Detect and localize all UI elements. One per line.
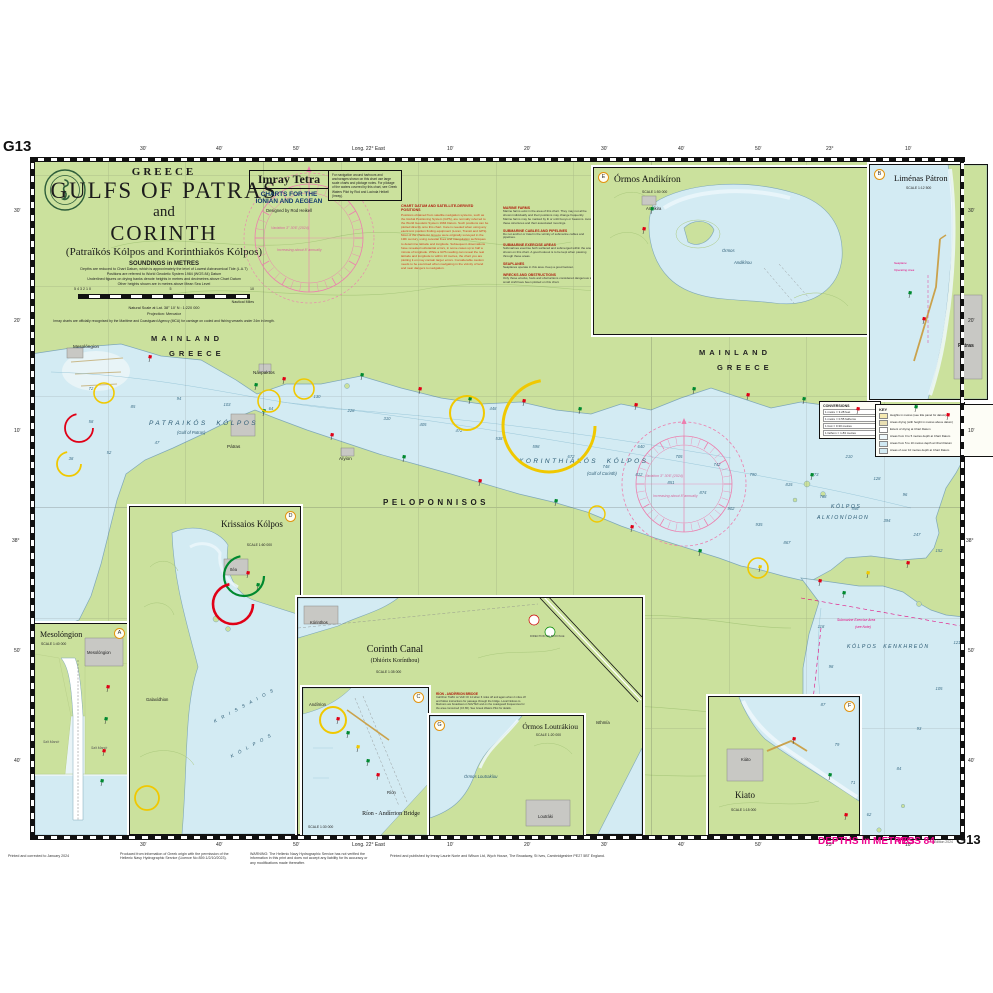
inset-badge: C [413, 692, 424, 703]
graticule-tick-label: 50' [755, 146, 762, 152]
key-line: Areas from 0 to 5 metres depth at Chart … [890, 435, 950, 438]
inset-label: Loutráki [538, 814, 553, 819]
inset-ormos-andikiron: Órmos Andikíron SCALE 1:50 000 E ÓrmosAn… [593, 167, 869, 335]
chart-label: Variation 3° 30'E (2024) [645, 474, 683, 478]
inset-title: Kiato [735, 790, 755, 800]
inset-label: Kiáto [741, 757, 751, 762]
inset-label: Andírrion [309, 702, 326, 707]
inset-krissaios-kolpos: Krissaios Kólpos SCALE 1:60 000 D ItéaGa… [129, 506, 301, 835]
margin-text: Printed and published by Imray Laurie No… [390, 854, 720, 858]
graticule-tick-label: 10' [447, 842, 454, 848]
inset-label: Mesolóngion [87, 650, 111, 655]
graticule-tick-label: 30' [140, 146, 147, 152]
graticule-tick-label: 38° [966, 538, 974, 544]
inset-label: Órmos Loutrakíou [464, 774, 498, 779]
cautionary-notes-column: MARINE FARMS Marine farms exist in the a… [503, 206, 593, 288]
inset-ormos-loutrakiou: Órmos Loutrákiou SCALE 1:20 000 G Órmos … [429, 715, 584, 836]
chart-label: KORINTHIAKÓS KÓLPOS [519, 458, 648, 465]
conversion-line: 1 metre = 0.55 fathoms [823, 416, 877, 422]
inset-title: Krissaios Kólpos [214, 519, 290, 529]
note-wrecks-body: Only those wrecks, fouls and obstruction… [503, 277, 593, 285]
chart-label: KÓLPOS KENKHREÓN [847, 644, 930, 650]
chart-label: (Gulf of Patras) [177, 430, 205, 435]
chart-label: Pátras [227, 444, 240, 449]
inset-label: Órmos [722, 248, 735, 253]
graticule-tick-label: 10' [447, 146, 454, 152]
conversion-line: 1 metre = 3.28 feet [823, 409, 877, 415]
graticule-tick-label: 50' [755, 842, 762, 848]
chart-label: (Gulf of Corinth) [587, 471, 617, 476]
inset-label: Andikírou [734, 260, 752, 265]
key-line: Areas drying (with height in metres abov… [890, 421, 953, 424]
nautical-miles-label: Nautical Miles [232, 300, 254, 304]
inset-scale: SCALE 1:15 000 [731, 808, 756, 812]
chart-label: GREECE [717, 363, 773, 372]
key-swatch-drying [879, 420, 888, 426]
note-cables-body: Do not anchor or trawl in the vicinity o… [503, 233, 593, 241]
scalebar-left-numbers: 5 4 3 2 1 0 [74, 287, 91, 291]
inset-label: Isthmía [596, 720, 610, 725]
inset-label: Galaxídhion [146, 697, 168, 702]
graticule-tick-label: 40' [216, 146, 223, 152]
key-title: KEY [879, 407, 991, 412]
key-swatch-0-5m [879, 434, 888, 440]
rion-bridge-note: RÍON - ANDÍRRION BRIDGE Call Ríon Traffi… [436, 692, 526, 710]
graticule-tick-label: 50' [14, 648, 21, 654]
designer-credit: Designed by Rod Heikell [234, 208, 344, 213]
inset-corinth-canal: Corinth Canal (Dhiórix Korínthou) SCALE … [297, 597, 643, 835]
note-seaplanes-body: Seaplanes operate in this area. Keep a g… [503, 266, 593, 270]
graticule-tick-label: 40' [678, 842, 685, 848]
note-submarine-body: Submarines exercise both surfaced and su… [503, 247, 593, 259]
key-swatch-5-10m [879, 441, 888, 447]
key-swatch-over-10m [879, 448, 888, 454]
inset-label: Itéa [230, 567, 237, 572]
inset-label: Ríon [387, 790, 396, 795]
chart-title-line3: CORINTH [39, 221, 289, 246]
inset-badge: G [434, 720, 445, 731]
chart-label: (see Note) [855, 625, 871, 629]
chart-area: GREECE GULFS OF PATRAS and CORINTH (Patr… [30, 157, 965, 840]
rion-bridge-note-body: Call Ríon Traffic on VHF Ch 14 when 6 mi… [436, 696, 526, 710]
inset-subtitle: (Dhiórix Korínthou) [340, 658, 450, 664]
mca-note: Imray charts are officially recognised b… [39, 319, 289, 323]
note-marine-farms-body: Marine farms exist in the area of this c… [503, 210, 593, 226]
scalebar-right-number: 10 [250, 287, 254, 291]
inset-limenas-patron: Liménas Pátron SCALE 1:12 500 B Seaplane… [869, 164, 988, 400]
chart-subtitle: (Patraïkós Kólpos and Korinthiakós Kólpo… [39, 246, 289, 258]
chart-label: Mesolóngion [73, 344, 99, 349]
inset-badge: D [285, 511, 296, 522]
margin-text: G13 [3, 138, 31, 155]
graticule-tick-label: Long. 22° East [352, 146, 385, 152]
key-line: Extent of drying at Chart Datum [890, 428, 931, 431]
inset-label: Salt Marsh [43, 740, 59, 744]
chart-label: Aíyion [339, 456, 352, 461]
inset-badge: B [874, 169, 885, 180]
inset-scale: SCALE 1:50 000 [642, 190, 667, 194]
chart-label: MAINLAND [151, 334, 223, 343]
margin-text: Printed and corrected to January 2024 [8, 854, 118, 858]
border-graduation-right [960, 158, 964, 839]
chart-label: Increasing about 8' annually [653, 494, 698, 498]
graticule-tick-label: 50' [293, 842, 300, 848]
inset-scale: SCALE 1:30 000 [308, 825, 333, 829]
inset-scale: SCALE 1:35 000 [376, 670, 401, 674]
depth-key-box: KEY Heights in metres (see title panel f… [875, 404, 993, 457]
inset-title: Liménas Pátron [894, 173, 948, 183]
key-swatch-land [879, 413, 888, 419]
graticule-tick-label: 30' [140, 842, 147, 848]
projection-note: Projection: Mercator [39, 312, 289, 316]
graticule-tick-label: 38° [12, 538, 20, 544]
chart-label: Návpaktos [253, 370, 275, 375]
graticule-tick-label: 30' [601, 842, 608, 848]
chart-datum-note: CHART DATUM AND SATELLITE-DERIVED POSITI… [401, 204, 489, 270]
chart-label: MAINLAND [699, 348, 771, 357]
graticule-tick-label: 10' [905, 146, 912, 152]
chart-label: ALKIONÍDHON [817, 515, 869, 521]
graticule-tick-label: 10' [968, 428, 975, 434]
graticule-tick-label: 50' [968, 648, 975, 654]
chart-sheet: GREECE GULFS OF PATRAS and CORINTH (Patr… [0, 0, 993, 993]
conversion-line: 1 fathom = 1.83 metres [823, 430, 877, 436]
datum-small-print: Depths are reduced to Chart Datum, which… [39, 267, 289, 286]
graticule-tick-label: 10' [14, 428, 21, 434]
inset-title: Órmos Andikíron [614, 175, 681, 185]
natural-scale-note: Natural Scale at Lat. 38° 10' N : 1:220 … [39, 306, 289, 310]
inset-scale: SCALE 1:20 000 [536, 733, 561, 737]
chart-datum-note-body: Positions obtained from satellite naviga… [401, 213, 489, 270]
inset-title: Órmos Loutrákiou [522, 722, 578, 731]
graticule-tick-label: 23° [826, 146, 834, 152]
border-graduation-top [31, 158, 964, 162]
graticule-tick-label: 20' [524, 146, 531, 152]
key-line: Areas from 5 to 10 metres depth at Chart… [890, 442, 952, 445]
inset-label: Andíkira [646, 206, 661, 211]
inset-title: Ríon - Andírrion Bridge [358, 811, 424, 817]
graticule-tick-label: 40' [14, 758, 21, 764]
scalebar-mid-number: 5 [169, 287, 171, 291]
key-line: Heights in metres (see title panel for d… [890, 414, 946, 417]
conversion-line: 1 foot = 0.30 metres [823, 423, 877, 429]
inset-title: Mesolóngion [40, 630, 82, 639]
inset-label: Salt Marsh [91, 746, 107, 750]
key-swatch-drying-edge [879, 427, 888, 433]
chart-label: PELOPONNISOS [383, 498, 489, 507]
inset-label: Kórinthos [310, 620, 328, 625]
graticule-tick-label: 30' [14, 208, 21, 214]
margin-text: Produced from information of Greek origi… [120, 852, 238, 861]
inset-label: DIRECTION OF BUOYAGE [530, 634, 564, 638]
inset-title: Corinth Canal [340, 644, 450, 655]
chart-label: KÓLPOS [831, 504, 861, 510]
graticule-tick-label: 50' [293, 146, 300, 152]
margin-text: G13 [956, 832, 981, 847]
graticule-tick-label: 30' [968, 208, 975, 214]
graticule-tick-label: 20' [14, 318, 21, 324]
graticule-tick-label: 30' [601, 146, 608, 152]
graticule-tick-label: 40' [678, 146, 685, 152]
inset-mesolongion: Mesolóngion SCALE 1:40 000 A Salt MarshS… [34, 623, 129, 836]
inset-scale: SCALE 1:40 000 [41, 642, 66, 646]
key-line: Areas of over 10 metres depth at Chart D… [890, 449, 949, 452]
inset-badge: F [844, 701, 855, 712]
inset-scale: SCALE 1:60 000 [247, 543, 272, 547]
inset-rion-andirrion-bridge: Ríon - Andírrion Bridge SCALE 1:30 000 C… [302, 687, 429, 836]
margin-text: Edition 2024 [934, 840, 953, 844]
graticule-tick-label: 20' [968, 318, 975, 324]
inset-badge: E [598, 172, 609, 183]
inset-scale: SCALE 1:12 500 [906, 186, 931, 190]
inset-label: Seaplane [894, 261, 907, 265]
graticule-tick-label: 40' [216, 842, 223, 848]
graticule-tick-label: Long. 22° East [352, 842, 385, 848]
scale-bar [78, 294, 250, 299]
graticule-tick-label: 20' [524, 842, 531, 848]
inset-badge: A [114, 628, 125, 639]
inset-label: Operating Area [894, 268, 914, 272]
chart-label: Submarine Exercise Area [837, 618, 875, 622]
conversions-title: CONVERSIONS [823, 404, 877, 408]
chart-datum-note-title: CHART DATUM AND SATELLITE-DERIVED POSITI… [401, 204, 489, 212]
imray-tetra-brand: Imray Tetra [249, 170, 329, 189]
inset-kiato: Kiato SCALE 1:15 000 F Kiáto [708, 696, 860, 835]
border-graduation-left [31, 158, 35, 839]
conversions-box: CONVERSIONS 1 metre = 3.28 feet 1 metre … [819, 401, 881, 439]
pilotage-note-box: For navigation around harbours and ancho… [328, 170, 402, 201]
chart-label: GREECE [169, 349, 225, 358]
margin-text: WGS 84 [897, 836, 935, 847]
graticule-tick-label: 40' [968, 758, 975, 764]
margin-text: WARNING: The Hellenic Navy Hydrographic … [250, 852, 370, 865]
chart-label: PATRAIKÓS KÓLPOS [149, 420, 258, 427]
